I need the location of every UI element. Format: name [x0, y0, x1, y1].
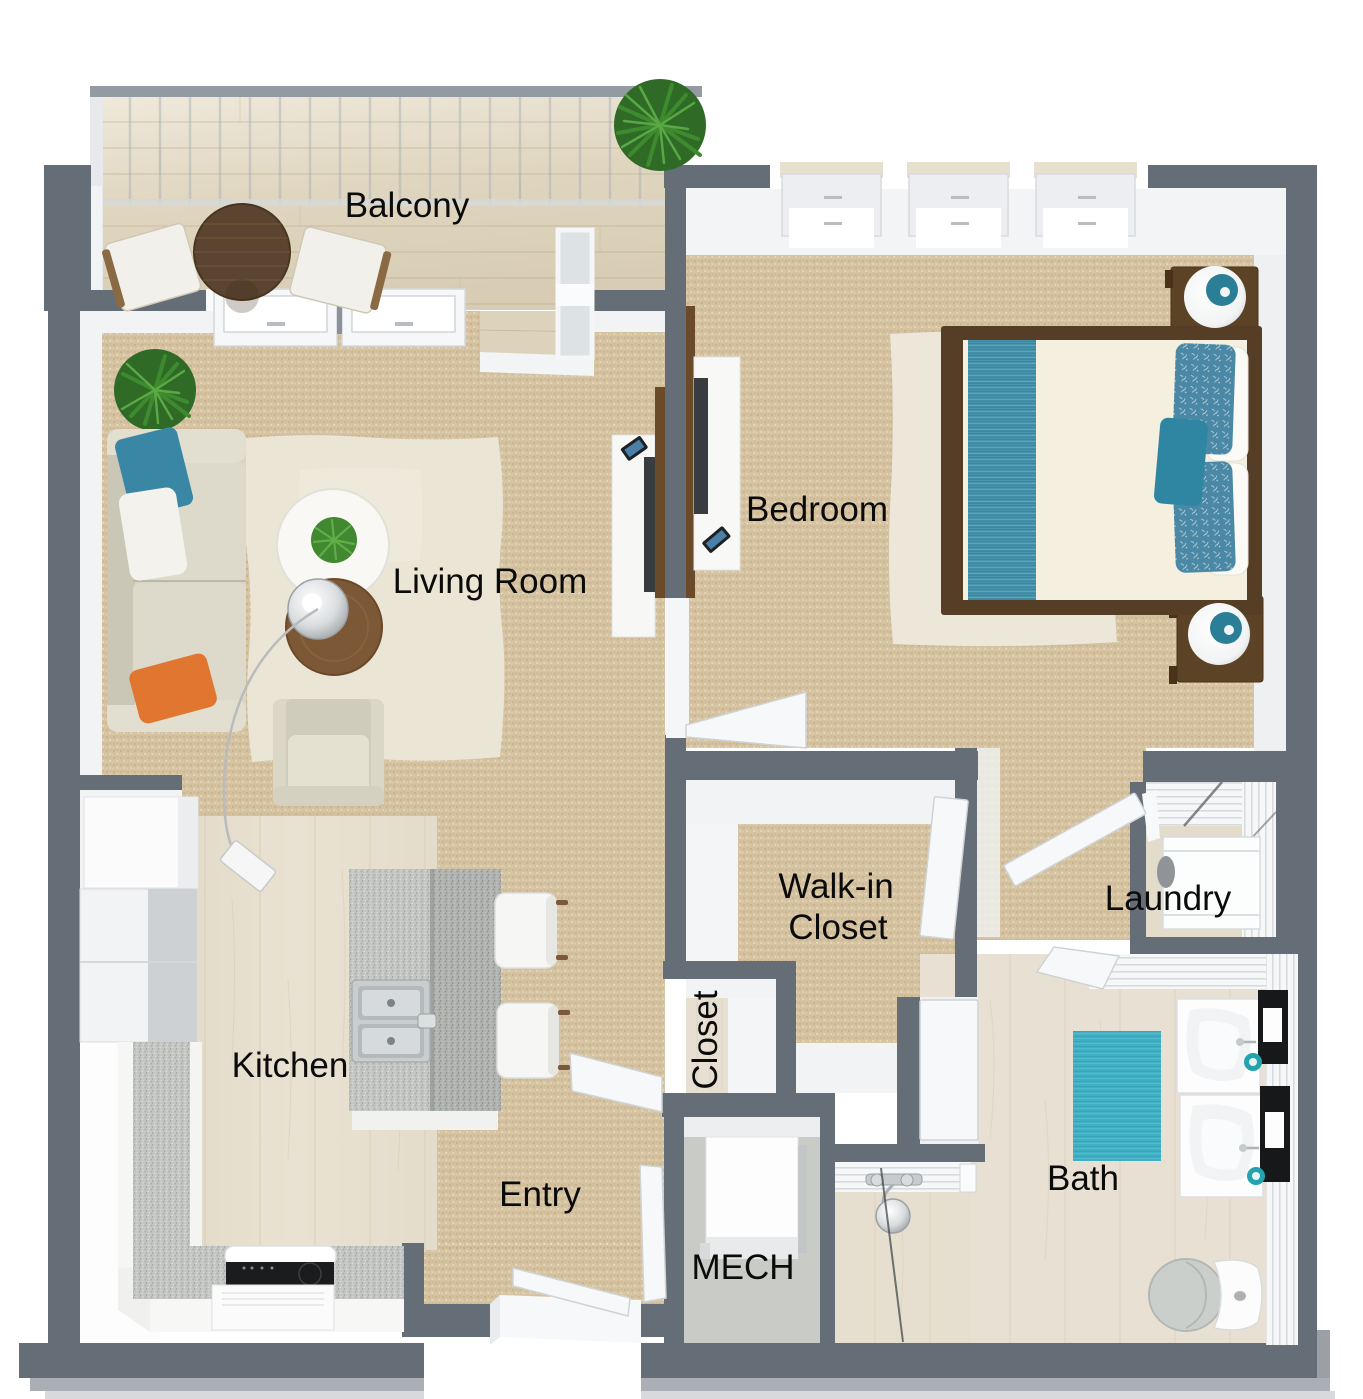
svg-text:Living Room: Living Room [393, 562, 588, 601]
svg-text:Kitchen: Kitchen [232, 1046, 349, 1085]
svg-text:Walk-in: Walk-in [778, 867, 893, 906]
svg-text:Laundry: Laundry [1105, 879, 1232, 918]
svg-text:Entry: Entry [499, 1175, 581, 1214]
svg-text:MECH: MECH [691, 1248, 794, 1287]
svg-text:Bedroom: Bedroom [746, 490, 888, 529]
svg-text:Closet: Closet [788, 908, 887, 947]
svg-text:Bath: Bath [1047, 1159, 1119, 1198]
svg-text:Closet: Closet [686, 990, 725, 1089]
svg-text:Balcony: Balcony [345, 186, 470, 225]
